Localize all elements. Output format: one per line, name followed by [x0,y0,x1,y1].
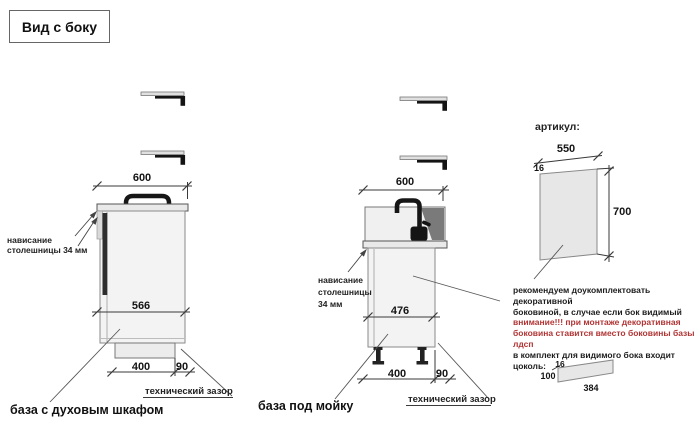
note-line-warning: боковина ставится вместо боковины базы л… [513,328,700,350]
left-body [100,211,185,343]
oven-cabinet-drawing [97,196,188,358]
dim-panel-height: 700 [613,206,631,218]
cabinet-leg-icon [373,347,385,365]
bracket-icon [400,97,447,111]
dim-left-plinth-depth: 400 [132,361,150,373]
note-line: боковиной, в случае если бок видимый [513,307,700,318]
dim-panel-thickness: 16 [534,163,544,173]
dim-left-body-depth: 566 [132,300,150,312]
title-box: Вид с боку [9,10,110,43]
article-heading: артикул: [535,121,580,133]
dim-sink-countertop-depth: 600 [396,176,414,188]
bracket-icon [141,151,185,165]
drawing-canvas: Вид с боку 600 566 400 90 нависание стол… [0,0,700,428]
dim-plinth-length: 384 [583,383,598,393]
dim-plinth-height: 100 [540,371,555,381]
oven-control-panel [97,211,103,239]
dim-panel-width: 550 [557,143,575,155]
oven-door-edge [103,213,108,295]
dim-sink-rear-gap: 90 [436,368,448,380]
sink-body [368,248,435,347]
sink-overhang-note-line1: нависание [318,275,363,285]
note-line: в комплект для видимого бока входит цоко… [513,350,700,372]
note-block: рекомендуем доукомплектовать декоративно… [513,285,700,371]
note-line-warning: внимание!!! при монтаже декоративная [513,317,700,328]
sink-countertop [363,241,447,248]
note-line: рекомендуем доукомплектовать декоративно… [513,285,700,307]
dim-sink-plinth-depth: 400 [388,368,406,380]
faucet-body [411,227,428,242]
left-countertop [97,204,188,211]
sink-cabinet-label: база под мойку [258,399,353,413]
cabinet-leg-icon [417,347,429,365]
left-cabinet-label: база с духовым шкафом [10,403,163,417]
left-overhang-note-line2: столешницы 34 мм [7,245,87,255]
left-plinth [115,343,175,358]
sink-overhang-note-line2: столешницы [318,287,372,297]
sink-gap-label: технический зазор [408,394,496,405]
dim-left-countertop-depth: 600 [133,172,151,184]
left-overhang-note-line1: нависание [7,235,52,245]
dim-left-rear-gap: 90 [176,361,188,373]
dim-sink-body-depth: 476 [391,305,409,317]
page-title: Вид с боку [22,19,97,35]
left-gap-label: технический зазор [145,386,233,397]
dim-plinth-thickness: 16 [555,359,564,369]
sink-overhang-note-line3: 34 мм [318,299,342,309]
bracket-icon [141,92,185,106]
side-panel-shape [540,169,597,260]
bracket-icon [400,156,447,170]
